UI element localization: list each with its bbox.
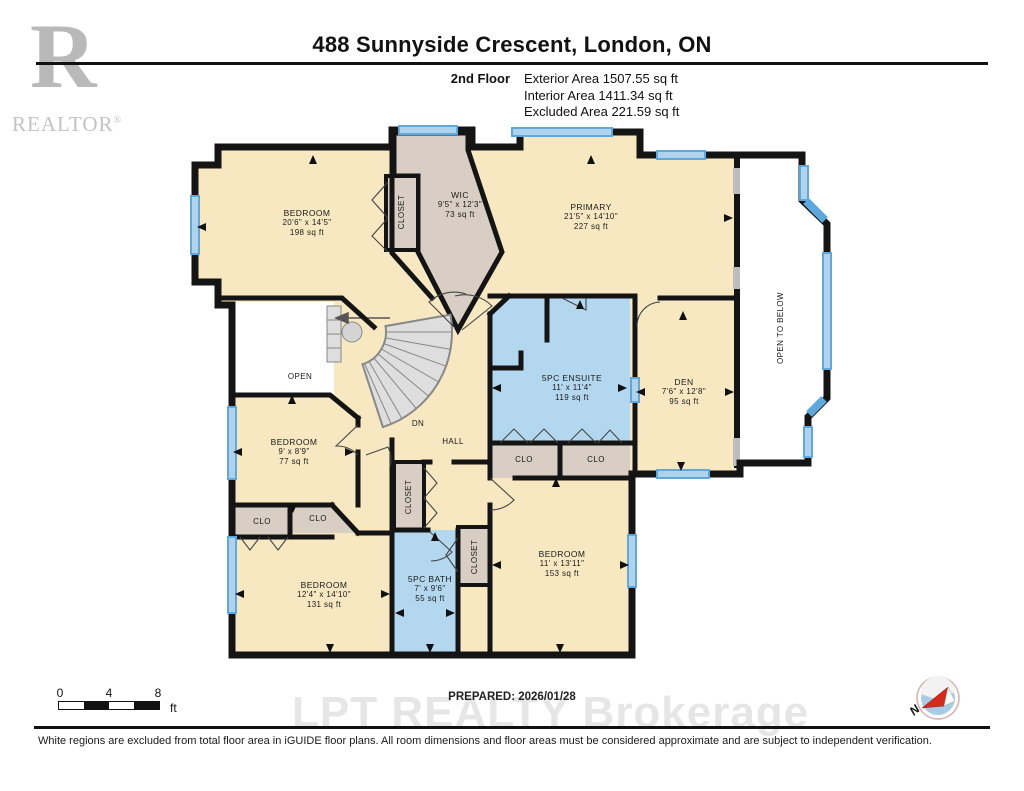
room-dims: 20'6" x 14'5" <box>282 218 331 228</box>
room-area: 119 sq ft <box>542 393 602 403</box>
room-label-closet-tl: CLOSET <box>397 195 407 229</box>
room-name: CLO <box>309 514 327 524</box>
room-area: 73 sq ft <box>438 210 482 220</box>
room-label-primary: PRIMARY 21'5" x 14'10" 227 sq ft <box>564 202 618 232</box>
room-label-clo-d: CLO <box>309 514 327 524</box>
room-name: CLO <box>515 455 533 465</box>
floor-plan-sheet: R REALTOR® 488 Sunnyside Crescent, Londo… <box>0 0 1024 791</box>
room-label-closet-mid: CLOSET <box>404 480 414 514</box>
open-region <box>232 302 334 394</box>
room-name: 5PC BATH <box>408 574 452 584</box>
room-label-hall: HALL <box>442 437 464 447</box>
room-name: WIC <box>438 190 482 200</box>
prepared-date: PREPARED: 2026/01/28 <box>0 691 1024 703</box>
room-area: 95 sq ft <box>662 397 706 407</box>
room-label-bath: 5PC BATH 7' x 9'6" 55 sq ft <box>408 574 452 604</box>
room-name: CLOSET <box>404 480 414 514</box>
room-label-clo-a: CLO <box>515 455 533 465</box>
room-dims: 11' x 11'4" <box>542 383 602 393</box>
room-area: 153 sq ft <box>539 569 586 579</box>
room-name: DEN <box>662 377 706 387</box>
disclaimer-text: White regions are excluded from total fl… <box>38 735 1004 747</box>
room-area: 131 sq ft <box>297 600 351 610</box>
room-area: 227 sq ft <box>564 222 618 232</box>
room-dims: 9'5" x 12'3" <box>438 200 482 210</box>
room-label-closet-rb: CLOSET <box>470 540 480 574</box>
room-label-den: DEN 7'6" x 12'8" 95 sq ft <box>662 377 706 407</box>
room-name: OPEN <box>288 372 312 382</box>
room-label-bedroom-br: BEDROOM 11' x 13'11" 153 sq ft <box>539 549 586 579</box>
room-name: HALL <box>442 437 464 447</box>
room-dims: 7' x 9'6" <box>408 584 452 594</box>
scale-unit: ft <box>170 701 177 715</box>
room-label-ensuite: 5PC ENSUITE 11' x 11'4" 119 sq ft <box>542 373 602 403</box>
room-label-bedroom-tl: BEDROOM 20'6" x 14'5" 198 sq ft <box>282 208 331 238</box>
room-name: CLOSET <box>397 195 407 229</box>
room-dims: 12'4" x 14'10" <box>297 590 351 600</box>
room-dims: 11' x 13'11" <box>539 559 586 569</box>
room-label-dn: DN <box>412 419 424 429</box>
room-label-clo-c: CLO <box>253 517 271 527</box>
room-name: OPEN TO BELOW <box>776 292 786 364</box>
room-label-bedroom-w: BEDROOM 9' x 8'9" 77 sq ft <box>271 437 318 467</box>
room-area: 77 sq ft <box>271 457 318 467</box>
room-name: 5PC ENSUITE <box>542 373 602 383</box>
room-label-clo-b: CLO <box>587 455 605 465</box>
room-dims: 21'5" x 14'10" <box>564 212 618 222</box>
room-area: 198 sq ft <box>282 228 331 238</box>
room-name: CLOSET <box>470 540 480 574</box>
room-name: DN <box>412 419 424 429</box>
room-label-wic: WIC 9'5" x 12'3" 73 sq ft <box>438 190 482 220</box>
room-name: CLO <box>587 455 605 465</box>
room-label-open: OPEN <box>288 372 312 382</box>
floor-plan-svg: N <box>0 0 1024 791</box>
room-name: BEDROOM <box>282 208 331 218</box>
room-dims: 9' x 8'9" <box>271 447 318 457</box>
room-name: BEDROOM <box>539 549 586 559</box>
footer-divider <box>34 726 990 729</box>
room-name: BEDROOM <box>297 580 351 590</box>
room-name: CLO <box>253 517 271 527</box>
room-label-bedroom-bl: BEDROOM 12'4" x 14'10" 131 sq ft <box>297 580 351 610</box>
room-dims: 7'6" x 12'8" <box>662 387 706 397</box>
room-area: 55 sq ft <box>408 594 452 604</box>
room-name: PRIMARY <box>564 202 618 212</box>
room-label-open-to-below: OPEN TO BELOW <box>776 292 786 364</box>
room-name: BEDROOM <box>271 437 318 447</box>
